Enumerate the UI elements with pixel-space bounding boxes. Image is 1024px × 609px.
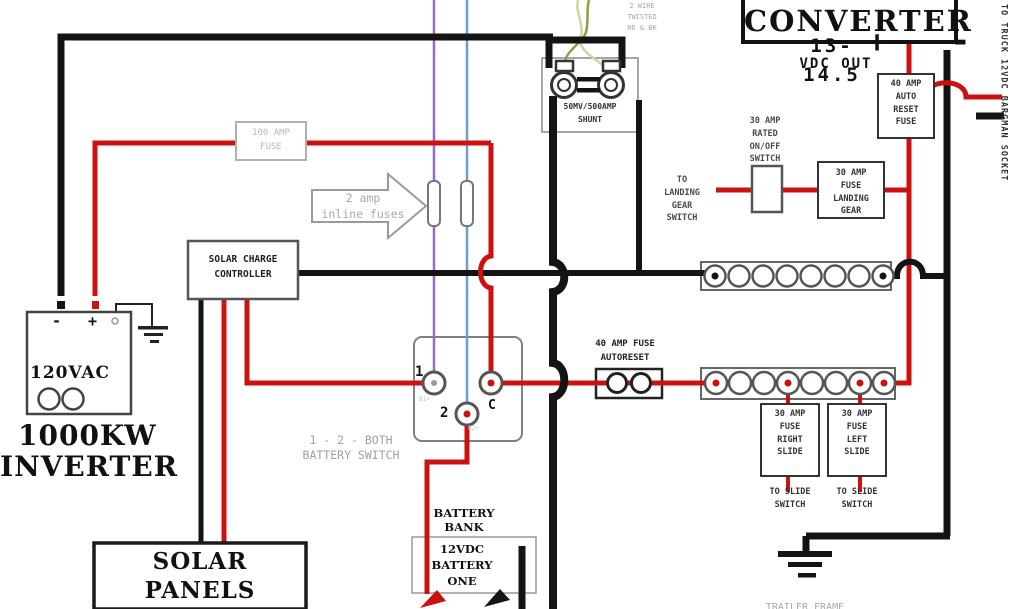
frame-ground-symbol	[778, 551, 832, 578]
inverter-plus: +	[88, 310, 97, 333]
frame-ground-label: TRAILER FRAME	[745, 600, 865, 609]
inverter-outlet	[63, 389, 84, 410]
wires	[61, 0, 1004, 609]
twisted-pair-label: 2 WIRE TWISTED RD & BK	[612, 1, 672, 35]
battery-one-label: 12VDC BATTERY ONE	[414, 541, 510, 589]
switch-terminal-2-label: 2	[440, 403, 448, 424]
inverter-ground-symbol	[138, 326, 168, 343]
switch-terminal-c-label: C	[488, 396, 496, 416]
wiring-diagram: CONVERTER 13-14.5 + VDC OUT - 40 AMP AUT…	[0, 0, 1024, 609]
right-slide-fuse-label: 30 AMP FUSE RIGHT SLIDE	[761, 408, 819, 459]
diagram-graphics	[0, 0, 1024, 609]
switch-terminal-2-sub: B2+	[468, 424, 479, 433]
inverter-voltage: 120VAC	[30, 361, 110, 387]
inverter-terminal-dashes	[57, 301, 99, 309]
to-slide-switch-label-1: TO SLIDE SWITCH	[754, 486, 826, 512]
wire-red-controller-to-switch1	[247, 299, 434, 383]
inverter-outlet	[39, 389, 60, 410]
minus-sign: -	[950, 16, 970, 67]
inverter-name-2: INVERTER	[0, 446, 170, 488]
to-slide-switch-label-2: TO SLIDE SWITCH	[821, 486, 893, 512]
truck-socket-label: TO TRUCK 12VDC BARGMAN SOCKET	[999, 4, 1008, 244]
onoff-switch-label: 30 AMP RATED ON/OFF SWITCH	[733, 115, 797, 166]
onoff-switch-box	[752, 166, 782, 212]
wire-black-negative-top	[61, 37, 553, 296]
left-slide-fuse-label: 30 AMP FUSE LEFT SLIDE	[828, 408, 886, 459]
battery-switch-caption: 1 - 2 - BOTH BATTERY SWITCH	[283, 433, 419, 463]
solar-panels-label: SOLAR PANELS	[94, 548, 306, 606]
inverter-minus: -	[52, 310, 61, 333]
converter-output-unit: VDC OUT	[786, 54, 886, 75]
autoreset-fuse-terminal	[632, 374, 651, 393]
inline-fuse-2	[461, 181, 473, 226]
shunt-label: 50MV/500AMP SHUNT	[543, 101, 637, 127]
inline-fuse-1	[428, 181, 440, 226]
battery-bank-label: BATTERY BANK	[420, 506, 508, 535]
to-landing-gear-label: TO LANDING GEAR SWITCH	[648, 174, 716, 225]
inline-fuses-label: 2 amp inline fuses	[302, 191, 424, 222]
landing-gear-fuse-label: 30 AMP FUSE LANDING GEAR	[818, 167, 884, 218]
switch-terminal-1-sub: B1+	[419, 395, 430, 404]
autoreset-fuse-label: 40 AMP FUSE AUTORESET	[572, 338, 678, 365]
auto-reset-fuse-label: 40 AMP AUTO RESET FUSE	[878, 78, 934, 129]
switch-terminal-1-label: 1	[415, 362, 423, 383]
main-fuse-label: 100 AMP FUSE	[236, 127, 306, 154]
autoreset-fuse-terminal	[608, 374, 627, 393]
solar-charge-controller-label: SOLAR CHARGE CONTROLLER	[188, 252, 298, 282]
wire-black-battery-negative	[553, 96, 564, 609]
